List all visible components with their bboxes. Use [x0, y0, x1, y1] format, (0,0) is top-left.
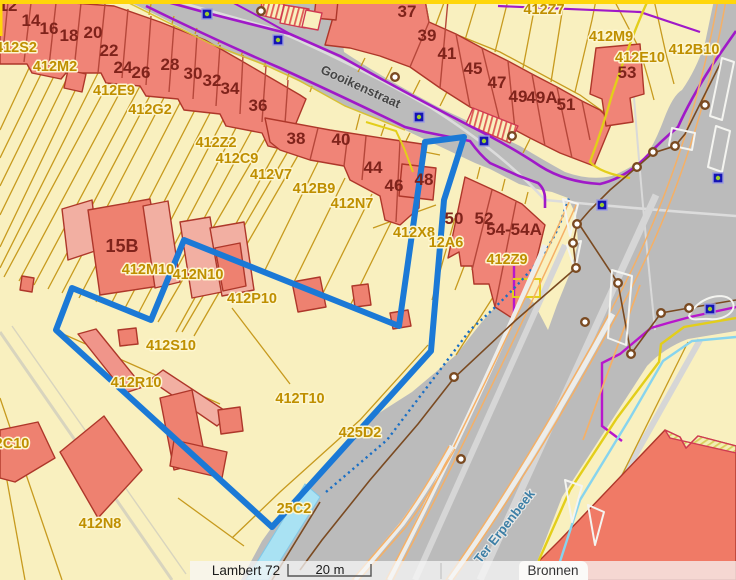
- svg-text:412E9: 412E9: [93, 83, 135, 99]
- svg-text:38: 38: [287, 129, 306, 148]
- svg-text:412N8: 412N8: [79, 516, 122, 532]
- svg-text:36: 36: [249, 96, 268, 115]
- svg-text:412G2: 412G2: [128, 102, 172, 118]
- svg-text:49A: 49A: [526, 88, 557, 107]
- svg-text:412Z9: 412Z9: [486, 252, 527, 268]
- svg-text:412Z7: 412Z7: [523, 2, 564, 18]
- svg-text:Bronnen: Bronnen: [527, 563, 578, 578]
- svg-text:20 m: 20 m: [316, 562, 345, 577]
- svg-text:412R10: 412R10: [111, 375, 162, 391]
- svg-text:412Z2: 412Z2: [195, 135, 236, 151]
- svg-text:425D2: 425D2: [339, 425, 382, 441]
- svg-text:39: 39: [418, 26, 437, 45]
- svg-text:412M9: 412M9: [589, 29, 633, 45]
- svg-text:Lambert 72: Lambert 72: [212, 563, 280, 578]
- svg-text:46: 46: [385, 176, 404, 195]
- svg-text:12A6: 12A6: [429, 235, 464, 251]
- svg-text:40: 40: [332, 130, 351, 149]
- svg-text:45: 45: [464, 59, 483, 78]
- svg-text:18: 18: [60, 26, 79, 45]
- svg-text:48: 48: [415, 170, 434, 189]
- svg-text:37: 37: [398, 2, 417, 21]
- svg-text:15B: 15B: [105, 236, 138, 256]
- svg-text:412M2: 412M2: [33, 59, 77, 75]
- svg-text:50: 50: [445, 209, 464, 228]
- svg-text:412N10: 412N10: [173, 267, 224, 283]
- svg-text:32: 32: [203, 71, 222, 90]
- svg-text:47: 47: [488, 73, 507, 92]
- svg-text:34: 34: [221, 79, 240, 98]
- svg-text:412M10: 412M10: [122, 262, 174, 278]
- svg-text:14: 14: [22, 11, 41, 30]
- svg-text:412N7: 412N7: [331, 196, 374, 212]
- svg-text:24: 24: [114, 58, 133, 77]
- svg-text:412C9: 412C9: [216, 151, 259, 167]
- svg-text:412P10: 412P10: [227, 291, 277, 307]
- svg-text:412T10: 412T10: [275, 391, 324, 407]
- svg-text:49: 49: [509, 87, 528, 106]
- svg-text:20: 20: [84, 23, 103, 42]
- svg-text:53: 53: [618, 63, 637, 82]
- svg-text:54-54A: 54-54A: [486, 220, 542, 239]
- svg-text:412B10: 412B10: [669, 42, 720, 58]
- svg-text:412S2: 412S2: [0, 40, 37, 56]
- svg-text:28: 28: [161, 55, 180, 74]
- svg-text:16: 16: [40, 19, 59, 38]
- svg-text:26: 26: [132, 63, 151, 82]
- svg-text:41: 41: [438, 44, 457, 63]
- svg-text:412S10: 412S10: [146, 338, 196, 354]
- svg-text:412B9: 412B9: [293, 181, 336, 197]
- svg-text:25C2: 25C2: [277, 501, 312, 517]
- svg-text:44: 44: [364, 158, 383, 177]
- svg-text:412V7: 412V7: [250, 167, 292, 183]
- svg-text:51: 51: [557, 95, 576, 114]
- svg-text:2C10: 2C10: [0, 436, 29, 452]
- svg-text:30: 30: [184, 64, 203, 83]
